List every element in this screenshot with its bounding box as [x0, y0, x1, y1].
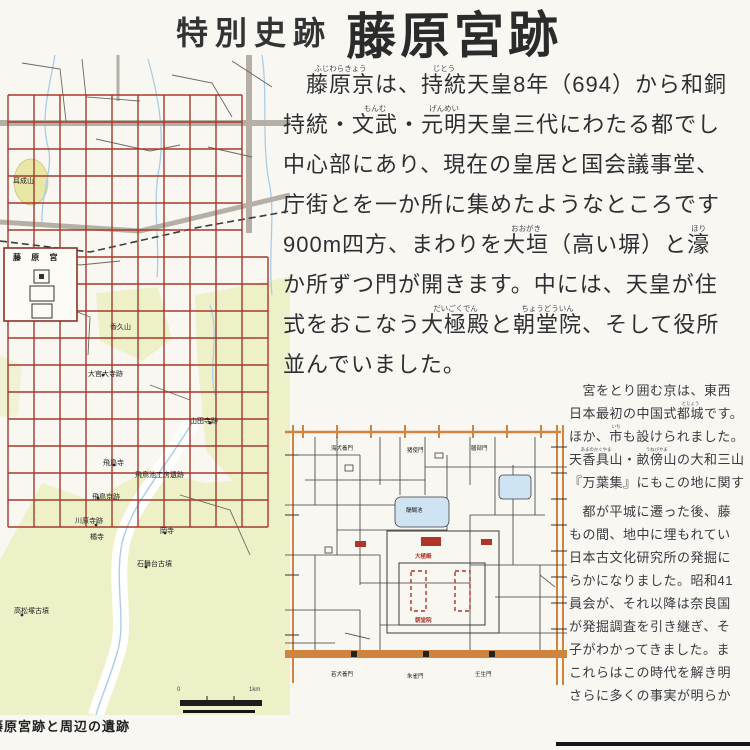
map-label: 朝堂院: [415, 616, 432, 624]
map-label: 1km: [249, 687, 260, 693]
text-line: 日本古文化研究所の発掘に: [569, 545, 750, 568]
map-label: 飛鳥池工房遺跡: [135, 470, 184, 480]
palace-plan-graphic: [285, 425, 567, 705]
text-line: 日本最初の中国式都城とじょうです。: [569, 401, 750, 424]
text-line: ほか、市いちも設けられました。: [569, 424, 750, 447]
map-label: 猪使門: [407, 446, 424, 454]
text-line: 藤原京ふじわらきょうは、持統じとう天皇8年（694）から和銅: [283, 62, 750, 102]
text-line: 中心部にあり、現在の皇居と国会議事堂、: [283, 142, 750, 182]
text-line: が発掘調査を引き継ぎ、そ: [569, 614, 750, 637]
map-label: 高松塚古墳: [14, 606, 49, 616]
map-label: 膳部門: [471, 444, 488, 452]
divider-line: [556, 742, 750, 746]
text-line: 宮をとり囲む京は、東西: [569, 378, 750, 401]
map-label: 橘寺: [90, 532, 104, 542]
text-line: もの間、地中に埋もれてい: [569, 522, 750, 545]
text-line: 天香具山あまのかぐやま・畝傍山うねびやまの大和三山: [569, 447, 750, 470]
map-label: 石舞台古墳: [137, 559, 172, 569]
map-label: 大極殿: [415, 552, 432, 560]
text-line: か所ずつ門が開きます。中には、天皇が住: [283, 262, 750, 302]
text-line: 並んでいました。: [283, 342, 750, 382]
text-line: 庁街とを一か所に集めたようなところです: [283, 182, 750, 222]
sign-photo: 特別史跡 藤原宮跡: [0, 0, 750, 750]
map-label: 藤 原 宮: [13, 252, 61, 263]
east-pond: [499, 475, 531, 499]
text-line: 持統・文武もんむ・元明げんめい天皇三代にわたる都でし: [283, 102, 750, 142]
palace-plan-map: 海犬養門猪使門膳部門醍醐池大極殿朝堂院若犬養門朱雀門壬生門: [285, 425, 567, 705]
text-line: 式をおこなう大極殿だいごくでんと朝堂院ちょうどういん、そして役所: [283, 302, 750, 342]
text-line: さらに多くの事実が明らか: [569, 683, 750, 706]
text-line: 『万葉集』にもこの地に関す: [569, 470, 750, 493]
text-line: 子がわかってきました。ま: [569, 637, 750, 660]
area-map-graphic: [0, 55, 290, 715]
map-label: 飛鳥京跡: [92, 492, 120, 502]
map-label: 若犬養門: [331, 670, 353, 678]
divider-line: [183, 710, 255, 713]
text-line: 都が平城に遷った後、藤: [569, 499, 750, 522]
text-line: これらはこの時代を解き明: [569, 660, 750, 683]
main-paragraph: 藤原京ふじわらきょうは、持統じとう天皇8年（694）から和銅持統・文武もんむ・元…: [283, 62, 750, 400]
map-caption: 藤原宮跡と周辺の遺跡: [0, 716, 130, 735]
map-label: 耳成山: [13, 176, 34, 186]
map-label: 大官大寺跡: [88, 369, 123, 379]
map-label: 壬生門: [475, 670, 492, 678]
map-label: 海犬養門: [331, 444, 353, 452]
map-label: 山田寺跡: [190, 416, 218, 426]
map-label: 飛鳥寺: [103, 458, 124, 468]
title-prefix: 特別史跡: [176, 8, 332, 54]
map-label: 岡寺: [160, 526, 174, 536]
text-line: 員会が、それ以降は奈良国: [569, 591, 750, 614]
map-label: 川原寺跡: [75, 516, 103, 526]
map-label: 醍醐池: [406, 506, 423, 514]
text-line: 900m四方、まわりを大垣おおがき（高い塀）と濠ほり: [283, 222, 750, 262]
page-title: 藤原宮跡: [346, 0, 563, 69]
map-label: 香久山: [110, 322, 131, 332]
text-line: らかになりました。昭和41: [569, 568, 750, 591]
palace-core: [351, 531, 499, 657]
map-label: 0: [177, 687, 180, 693]
area-map: 耳成山藤 原 宮香久山大官大寺跡山田寺跡飛鳥寺飛鳥池工房遺跡飛鳥京跡川原寺跡橘寺…: [0, 55, 290, 715]
side-paragraph: 宮をとり囲む京は、東西日本最初の中国式都城とじょうです。ほか、市いちも設けられま…: [569, 378, 750, 714]
map-label: 朱雀門: [407, 672, 424, 680]
